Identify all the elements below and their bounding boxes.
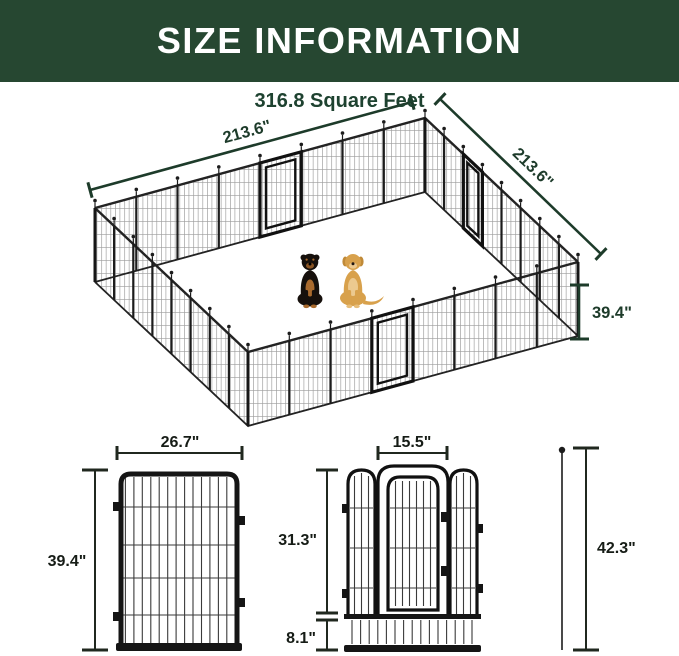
dim-depth-label: 213.6" — [509, 144, 557, 191]
gate-detail-diagram: 15.5" 31.3" 8.1" — [278, 434, 635, 652]
stake — [559, 447, 565, 650]
panel-frame — [121, 474, 237, 648]
gate-latch-bottom — [441, 566, 449, 576]
size-infographic: 213.6" 213.6" 39.4" — [0, 0, 679, 656]
gate-bottom-base-rail — [344, 645, 481, 652]
page-title: SIZE INFORMATION — [157, 20, 522, 62]
panel-vertical-wires — [125, 477, 226, 646]
dim-door-width: 15.5" — [378, 434, 447, 460]
dim-panel-width: 26.7" — [117, 434, 242, 460]
dim-height: 39.4" — [570, 285, 632, 339]
dim-height-label: 39.4" — [592, 304, 632, 322]
gate-latch-top — [441, 512, 449, 522]
rottweiler-icon — [298, 254, 323, 308]
pen-overview-diagram: 213.6" 213.6" 39.4" — [88, 93, 632, 426]
dim-bottom-height: 8.1" — [286, 620, 338, 650]
upper-height-label: 31.3" — [278, 532, 317, 549]
gate-bottom-top-rail — [344, 614, 481, 619]
total-height-label: 42.3" — [597, 540, 636, 557]
area-label: 316.8 Square Feet — [0, 90, 679, 113]
panel-detail-diagram: 26.7" 39.4" — [48, 434, 245, 651]
bottom-height-label: 8.1" — [286, 630, 316, 647]
golden-retriever-icon — [340, 254, 384, 308]
dim-panel-height: 39.4" — [48, 470, 108, 650]
dim-total-height: 42.3" — [573, 448, 636, 650]
door-width-label: 15.5" — [393, 434, 432, 451]
header-banner: SIZE INFORMATION — [0, 0, 679, 82]
panel-width-label: 26.7" — [161, 434, 200, 451]
panel-height-label: 39.4" — [48, 553, 87, 570]
panel-base-bar — [116, 643, 242, 651]
dim-upper-height: 31.3" — [278, 470, 338, 613]
